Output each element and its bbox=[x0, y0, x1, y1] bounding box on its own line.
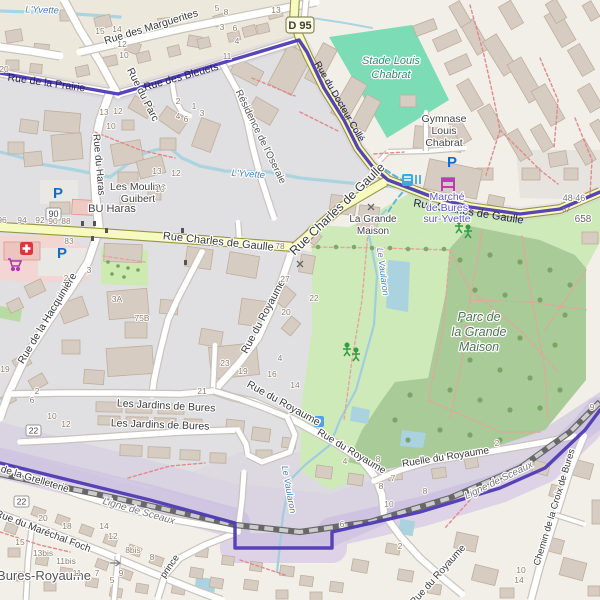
svg-text:8: 8 bbox=[224, 7, 229, 17]
svg-text:2: 2 bbox=[64, 273, 69, 283]
svg-text:96: 96 bbox=[0, 215, 7, 225]
svg-text:14: 14 bbox=[112, 24, 122, 34]
svg-text:6: 6 bbox=[340, 519, 345, 529]
svg-text:16: 16 bbox=[267, 369, 277, 379]
svg-text:10: 10 bbox=[119, 50, 129, 60]
svg-text:48 46: 48 46 bbox=[563, 193, 586, 203]
svg-text:Maison: Maison bbox=[459, 340, 499, 354]
svg-text:Chabrat: Chabrat bbox=[425, 137, 462, 149]
svg-text:13: 13 bbox=[271, 5, 281, 15]
svg-text:92: 92 bbox=[35, 215, 45, 225]
svg-text:94: 94 bbox=[17, 215, 27, 225]
svg-text:4: 4 bbox=[176, 111, 181, 121]
svg-text:78: 78 bbox=[275, 241, 285, 251]
svg-text:22: 22 bbox=[29, 426, 39, 436]
svg-text:Gymnase: Gymnase bbox=[422, 113, 467, 125]
svg-text:7: 7 bbox=[391, 473, 396, 483]
svg-text:22: 22 bbox=[17, 497, 27, 507]
svg-text:12: 12 bbox=[108, 531, 118, 541]
svg-text:D 95: D 95 bbox=[288, 20, 311, 32]
svg-text:L'Yvette: L'Yvette bbox=[25, 4, 59, 16]
svg-text:20: 20 bbox=[281, 307, 291, 317]
svg-text:3A: 3A bbox=[112, 294, 123, 304]
svg-text:12: 12 bbox=[61, 419, 71, 429]
svg-text:L'Yvette: L'Yvette bbox=[231, 168, 265, 181]
svg-text:14: 14 bbox=[99, 521, 109, 531]
svg-text:90: 90 bbox=[48, 216, 58, 226]
svg-text:5: 5 bbox=[215, 3, 220, 13]
svg-text:9: 9 bbox=[590, 402, 595, 412]
svg-text:11: 11 bbox=[73, 568, 82, 578]
svg-text:12: 12 bbox=[171, 168, 181, 178]
svg-text:10: 10 bbox=[516, 565, 526, 575]
svg-text:88: 88 bbox=[61, 216, 71, 226]
svg-text:14: 14 bbox=[514, 575, 524, 585]
svg-text:19: 19 bbox=[238, 366, 248, 376]
svg-text:4: 4 bbox=[235, 36, 240, 46]
svg-text:8: 8 bbox=[423, 486, 428, 496]
svg-text:5: 5 bbox=[110, 575, 115, 585]
svg-text:14: 14 bbox=[290, 380, 300, 390]
svg-text:13: 13 bbox=[99, 107, 109, 117]
svg-text:P: P bbox=[447, 154, 457, 171]
svg-text:8bis: 8bis bbox=[125, 545, 141, 555]
svg-text:10: 10 bbox=[106, 121, 116, 131]
svg-text:2: 2 bbox=[398, 541, 403, 551]
svg-text:P: P bbox=[57, 245, 67, 262]
svg-text:BU Haras: BU Haras bbox=[88, 203, 136, 215]
svg-text:27: 27 bbox=[280, 274, 290, 284]
svg-text:13bis: 13bis bbox=[33, 548, 53, 558]
svg-text:4: 4 bbox=[343, 456, 348, 466]
svg-text:8: 8 bbox=[376, 454, 381, 464]
svg-text:12: 12 bbox=[113, 106, 123, 116]
svg-text:11bis: 11bis bbox=[56, 556, 76, 566]
svg-text:la Grande: la Grande bbox=[452, 325, 507, 339]
svg-text:658: 658 bbox=[575, 214, 592, 225]
svg-text:3: 3 bbox=[220, 22, 225, 32]
svg-text:83: 83 bbox=[64, 236, 74, 246]
svg-text:11: 11 bbox=[223, 51, 232, 61]
svg-text:2: 2 bbox=[495, 438, 500, 448]
svg-text:sur-Yvette: sur-Yvette bbox=[423, 213, 470, 225]
svg-text:2: 2 bbox=[35, 386, 40, 396]
svg-text:6: 6 bbox=[30, 395, 35, 405]
svg-text:Louis: Louis bbox=[431, 125, 456, 137]
svg-text:67: 67 bbox=[562, 207, 570, 214]
svg-text:Stade Louis: Stade Louis bbox=[362, 55, 421, 67]
svg-text:9: 9 bbox=[119, 568, 124, 578]
svg-text:15: 15 bbox=[15, 537, 25, 547]
svg-text:21: 21 bbox=[197, 386, 207, 396]
svg-text:3: 3 bbox=[87, 265, 92, 275]
svg-text:6: 6 bbox=[184, 114, 189, 124]
svg-text:10: 10 bbox=[47, 411, 57, 421]
svg-text:Parc de: Parc de bbox=[457, 310, 500, 324]
svg-text:6: 6 bbox=[233, 23, 238, 33]
svg-text:13: 13 bbox=[152, 166, 162, 176]
svg-text:10: 10 bbox=[155, 184, 165, 194]
svg-text:4: 4 bbox=[278, 353, 283, 363]
svg-text:8: 8 bbox=[379, 481, 384, 491]
svg-text:Chabrat: Chabrat bbox=[371, 69, 411, 81]
svg-text:1: 1 bbox=[192, 101, 197, 111]
svg-text:La Grande: La Grande bbox=[349, 214, 397, 225]
svg-text:18: 18 bbox=[62, 521, 72, 531]
svg-text:10: 10 bbox=[384, 499, 394, 509]
svg-text:7: 7 bbox=[95, 568, 100, 578]
svg-text:15: 15 bbox=[95, 26, 105, 36]
svg-text:P: P bbox=[53, 185, 63, 202]
svg-text:75B: 75B bbox=[134, 313, 149, 323]
svg-text:20: 20 bbox=[38, 513, 48, 523]
svg-text:22: 22 bbox=[309, 293, 319, 303]
svg-text:2: 2 bbox=[176, 96, 181, 106]
svg-text:20: 20 bbox=[0, 64, 9, 74]
svg-text:8: 8 bbox=[150, 552, 155, 562]
svg-text:3: 3 bbox=[200, 108, 205, 118]
svg-text:23: 23 bbox=[220, 358, 230, 368]
svg-text:12: 12 bbox=[117, 39, 127, 49]
svg-text:19: 19 bbox=[0, 364, 10, 374]
svg-text:Maison: Maison bbox=[357, 226, 389, 237]
